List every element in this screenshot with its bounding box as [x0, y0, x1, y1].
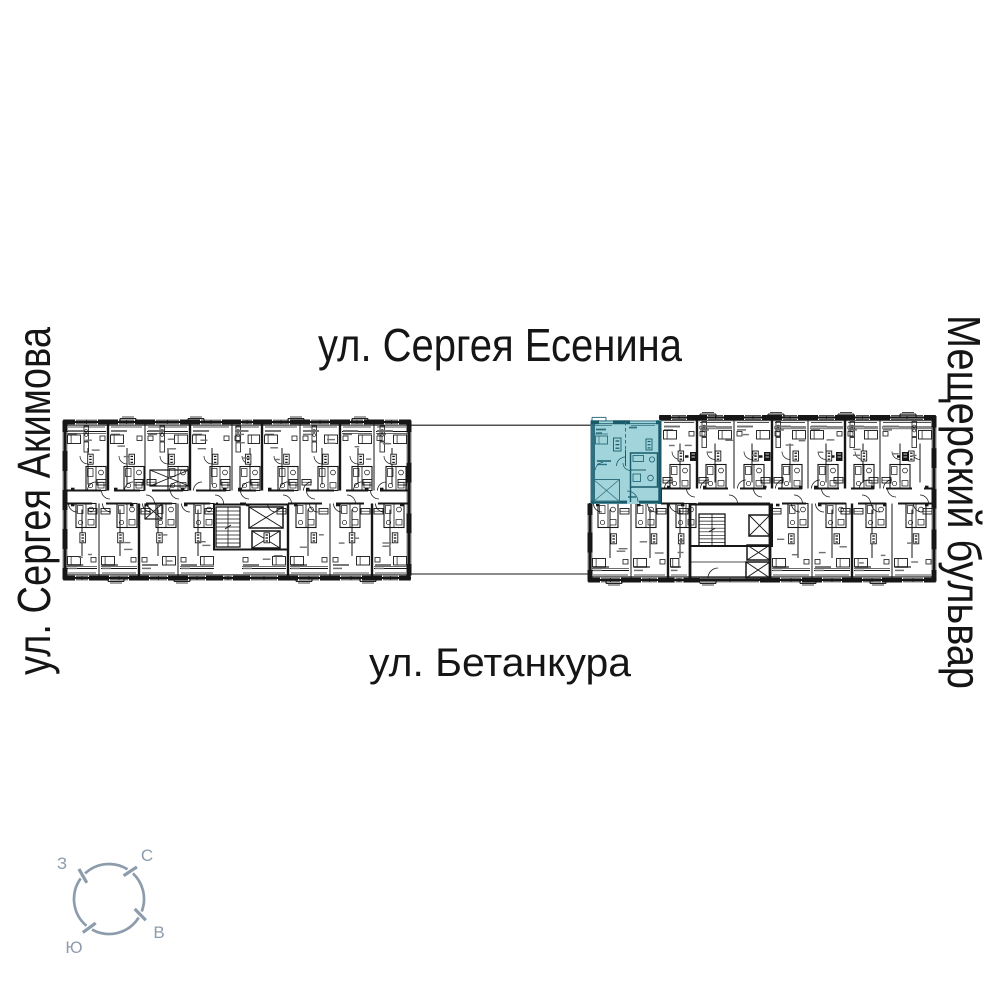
- svg-text:ул. Сергея Есенина: ул. Сергея Есенина: [318, 319, 682, 371]
- svg-text:Мещерский бульвар: Мещерский бульвар: [938, 315, 990, 689]
- svg-text:В: В: [153, 923, 164, 942]
- svg-text:ул. Бетанкура: ул. Бетанкура: [369, 641, 632, 685]
- svg-text:Ю: Ю: [65, 938, 82, 957]
- svg-text:ул. Сергея Акимова: ул. Сергея Акимова: [8, 327, 60, 675]
- svg-text:З: З: [57, 854, 67, 873]
- svg-text:С: С: [141, 846, 153, 865]
